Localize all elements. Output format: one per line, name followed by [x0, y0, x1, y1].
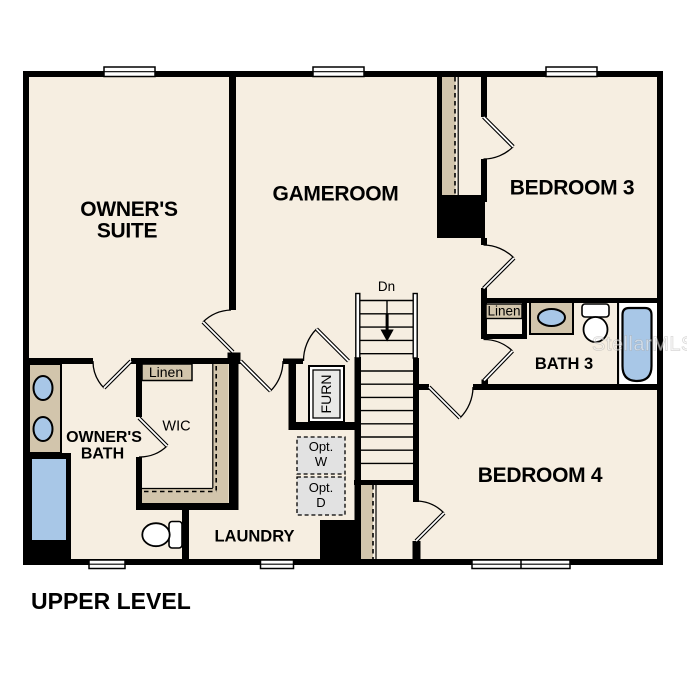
svg-text:BATH 3: BATH 3 [535, 355, 593, 373]
svg-text:D: D [316, 495, 325, 510]
svg-text:UPPER LEVEL: UPPER LEVEL [31, 588, 191, 614]
svg-text:Linen: Linen [149, 364, 183, 380]
svg-text:OWNER'S: OWNER'S [66, 429, 142, 446]
svg-text:WIC: WIC [162, 419, 190, 435]
svg-text:BATH: BATH [81, 446, 124, 463]
svg-text:FURN: FURN [318, 375, 334, 414]
svg-text:SUITE: SUITE [97, 220, 158, 243]
svg-text:Dn: Dn [378, 279, 395, 294]
svg-text:Opt.: Opt. [309, 439, 334, 454]
svg-text:OWNER'S: OWNER'S [80, 198, 178, 221]
svg-text:W: W [315, 454, 328, 469]
svg-text:GAMEROOM: GAMEROOM [273, 183, 399, 206]
svg-text:BEDROOM 3: BEDROOM 3 [510, 177, 634, 200]
svg-text:StellarMLS: StellarMLS [592, 334, 687, 356]
svg-text:BEDROOM 4: BEDROOM 4 [478, 464, 603, 487]
svg-text:LAUNDRY: LAUNDRY [214, 528, 294, 546]
svg-text:Opt.: Opt. [309, 480, 334, 495]
svg-text:Linen: Linen [487, 304, 520, 319]
